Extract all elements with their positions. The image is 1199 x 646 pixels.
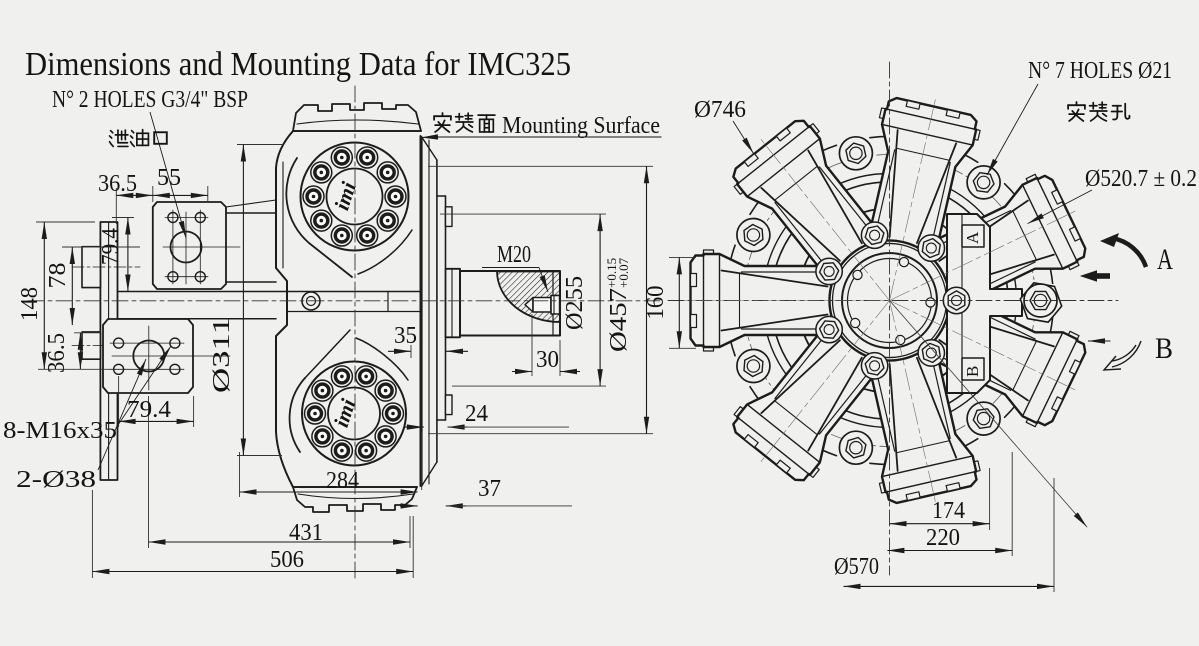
svg-text:79.4: 79.4 xyxy=(98,228,124,265)
svg-text:A: A xyxy=(963,231,982,244)
svg-text:A: A xyxy=(1157,243,1173,276)
svg-text:M20: M20 xyxy=(497,242,531,268)
svg-text:Ø746: Ø746 xyxy=(694,97,746,123)
svg-text:30: 30 xyxy=(536,347,559,373)
svg-text:B: B xyxy=(963,366,982,377)
svg-text:N° 7 HOLES Ø21: N° 7 HOLES Ø21 xyxy=(1028,58,1172,84)
svg-text:Ø311: Ø311 xyxy=(209,317,235,393)
svg-text:148: 148 xyxy=(17,287,43,321)
svg-text:2-Ø38: 2-Ø38 xyxy=(16,467,96,493)
svg-text:35: 35 xyxy=(394,323,417,349)
svg-text:431: 431 xyxy=(289,520,323,546)
svg-text:Ø520.7 ± 0.2: Ø520.7 ± 0.2 xyxy=(1085,166,1197,192)
svg-text:284: 284 xyxy=(326,468,359,494)
svg-text:Ø255: Ø255 xyxy=(562,276,588,330)
svg-text:55: 55 xyxy=(157,165,181,191)
svg-text:B: B xyxy=(1155,332,1173,365)
svg-text:36.5: 36.5 xyxy=(98,171,137,197)
svg-text:Ø570: Ø570 xyxy=(834,554,879,580)
svg-text:N° 2 HOLES G3/4" BSP: N° 2 HOLES G3/4" BSP xyxy=(52,87,248,113)
svg-text:36.5: 36.5 xyxy=(44,333,70,373)
svg-text:79.4: 79.4 xyxy=(127,397,171,423)
svg-text:506: 506 xyxy=(270,547,304,573)
svg-text:Dimensions and Mounting Data f: Dimensions and Mounting Data for IMC325 xyxy=(25,46,571,83)
svg-text:37: 37 xyxy=(478,476,501,502)
svg-text:78: 78 xyxy=(45,263,71,289)
svg-text:Mounting Surface: Mounting Surface xyxy=(502,113,660,139)
svg-text:8-M16x35: 8-M16x35 xyxy=(3,418,117,444)
svg-text:174: 174 xyxy=(932,498,965,524)
svg-text:24: 24 xyxy=(465,401,488,427)
svg-text:+0.07: +0.07 xyxy=(616,257,631,288)
svg-text:220: 220 xyxy=(926,525,960,551)
svg-text:Ø457: Ø457 xyxy=(606,288,632,352)
svg-text:160: 160 xyxy=(643,286,669,320)
